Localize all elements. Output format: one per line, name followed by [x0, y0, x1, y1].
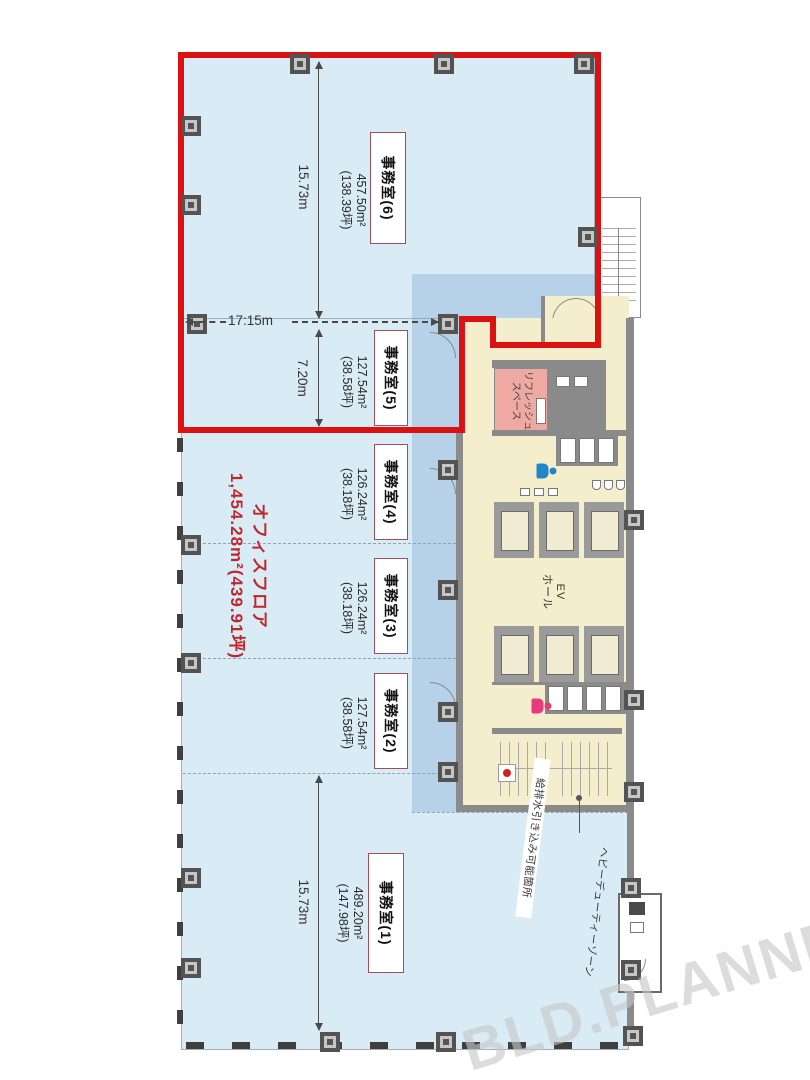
plumbing-marker — [498, 764, 516, 782]
dim-line-width — [188, 321, 226, 323]
column — [181, 958, 201, 978]
column — [181, 195, 201, 215]
dim-line-upper — [318, 62, 319, 318]
column — [624, 782, 644, 802]
room-area-6: 457.50m² (138.39坪) — [336, 135, 368, 265]
core-wall — [541, 296, 545, 346]
ev-hall-line1: EV — [553, 562, 566, 622]
core-wall — [456, 433, 463, 812]
highlight-outline-top — [178, 52, 601, 58]
sink-fixture — [534, 488, 544, 496]
urinal — [616, 480, 625, 490]
core-wall — [626, 318, 634, 812]
toilet-stall — [586, 686, 602, 711]
stair-treads — [562, 742, 612, 796]
sink-fixture — [556, 376, 570, 387]
toilet-stall — [598, 438, 614, 463]
dim-line-room5 — [318, 330, 319, 426]
column — [438, 314, 458, 334]
dim-arrow — [185, 318, 193, 326]
column — [621, 878, 641, 898]
column — [320, 1032, 340, 1052]
toilet-stall — [579, 438, 595, 463]
room-area-5: 127.54m² (38.58坪) — [337, 322, 369, 442]
room-label-1: 事務室(1) — [368, 853, 404, 973]
column — [181, 116, 201, 136]
utility-block — [548, 360, 606, 432]
column — [181, 535, 201, 555]
highlight-outline-left — [178, 52, 184, 433]
toilet-stall — [567, 686, 583, 711]
summary-title: オフィスフロア — [248, 431, 271, 701]
elevator-shaft — [584, 502, 624, 558]
fixture — [629, 902, 645, 915]
room-label-5: 事務室(5) — [374, 330, 408, 426]
column — [578, 227, 598, 247]
partition-line — [183, 773, 460, 774]
dim-arrow — [431, 318, 439, 326]
core-wall — [463, 805, 629, 812]
elevator-shaft — [539, 502, 579, 558]
column — [290, 54, 310, 74]
room-label-3: 事務室(3) — [374, 558, 408, 654]
dim-line-lower — [318, 776, 319, 1030]
elevator-shaft — [494, 626, 534, 682]
heavy-duty-leader — [579, 801, 580, 833]
dim-width-label: 17:15m — [228, 313, 273, 328]
column — [438, 580, 458, 600]
elevator-shaft — [584, 626, 624, 682]
urinal — [592, 480, 601, 490]
ev-hall-line2: ホール — [540, 562, 553, 622]
highlight-outline-right — [595, 52, 601, 348]
highlight-outline-bottom — [178, 427, 465, 433]
room-area-3: 126.24m² (38.18坪) — [337, 548, 369, 668]
sink-fixture — [548, 488, 558, 496]
dim-upper-label: 15.73m — [293, 157, 311, 217]
room-label-4: 事務室(4) — [374, 444, 408, 540]
summary-area: 1,454.28m²(439.91坪) — [225, 431, 248, 701]
column — [436, 1032, 456, 1052]
room-label-2: 事務室(2) — [374, 673, 408, 769]
column — [434, 54, 454, 74]
toilet-stall — [605, 686, 621, 711]
column — [624, 510, 644, 530]
highlight-outline-step-h1 — [490, 342, 601, 348]
floor-plan: EV ホール — [0, 0, 810, 1080]
column — [181, 653, 201, 673]
elevator-shaft — [539, 626, 579, 682]
column — [438, 702, 458, 722]
men-restroom-icon — [536, 463, 557, 479]
ev-hall-label: EV ホール — [540, 562, 566, 622]
column — [574, 54, 594, 74]
women-restroom-icon — [531, 698, 552, 714]
elevator-shaft — [494, 502, 534, 558]
room-label-6: 事務室(6) — [370, 132, 406, 244]
refresh-counter — [536, 398, 546, 424]
window-dashes-left — [177, 438, 183, 1038]
column — [438, 460, 458, 480]
room-area-2: 127.54m² (38.58坪) — [337, 663, 369, 783]
stair-rail — [500, 768, 612, 769]
dim-room5-label: 7.20m — [292, 352, 310, 404]
toilet-stall — [560, 438, 576, 463]
urinal — [604, 480, 613, 490]
partition-line — [412, 812, 628, 813]
column — [181, 868, 201, 888]
core-wall — [492, 728, 622, 734]
dim-lower-label: 15.73m — [293, 872, 311, 932]
column — [624, 690, 644, 710]
room-area-4: 126.24m² (38.18坪) — [337, 434, 369, 554]
room-area-1: 489.20m² (147.98坪) — [333, 848, 365, 978]
office-floor-summary: オフィスフロア 1,454.28m²(439.91坪) — [223, 431, 271, 701]
fixture — [630, 922, 644, 933]
plumbing-dot — [503, 769, 511, 777]
column — [438, 762, 458, 782]
highlight-outline-step-v2 — [459, 316, 465, 433]
sink-fixture — [574, 376, 588, 387]
refresh-space-label: リフレッシュ スペース — [509, 366, 533, 436]
sink-fixture — [520, 488, 530, 496]
